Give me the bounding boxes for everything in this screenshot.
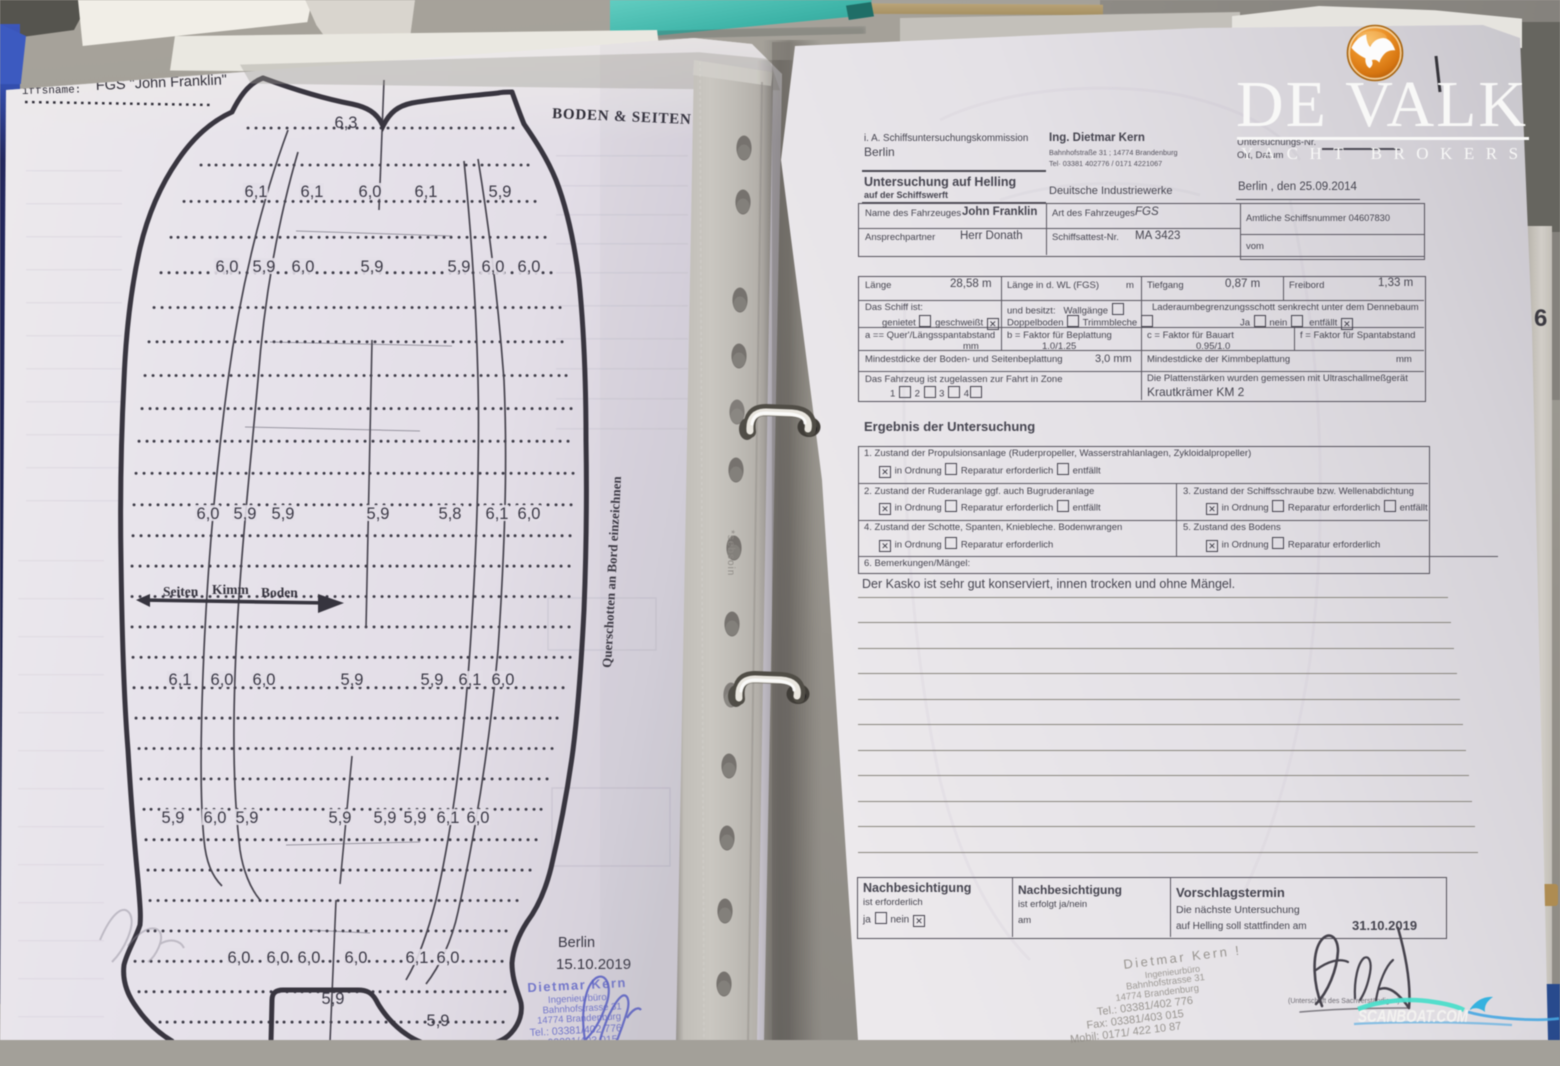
svg-text:SCANBOAT.COM: SCANBOAT.COM — [1358, 1006, 1468, 1026]
